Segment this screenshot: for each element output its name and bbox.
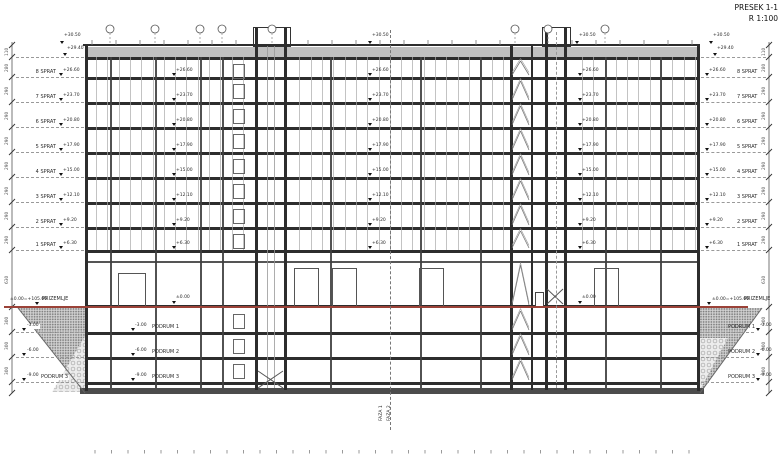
mullion-line — [446, 57, 447, 250]
floor-name-label: 7 SPRAT — [737, 95, 757, 100]
foundation-slab — [80, 388, 704, 394]
leader-line — [16, 332, 84, 333]
mullion-line — [345, 57, 346, 250]
elevation-marker-icon — [22, 353, 26, 356]
shaft-door-box — [535, 292, 544, 307]
mullion-line — [424, 57, 425, 250]
stair-flight-line — [521, 204, 530, 223]
floor-elevation-label: +26.60 — [582, 69, 599, 74]
leader-line — [701, 227, 766, 228]
elevator-door-box — [233, 209, 245, 224]
parapet-line — [83, 44, 700, 46]
dimension-value: 290 — [763, 161, 767, 169]
dimension-tick — [9, 199, 15, 205]
floor-elevation-label: +20.80 — [709, 119, 726, 124]
mullion-line — [401, 57, 402, 250]
title-block: PRESEK 1-1 R 1:100 — [640, 3, 778, 24]
stair-flight-line — [521, 59, 530, 73]
elevation-marker-icon — [131, 328, 135, 331]
shaft-centerline — [556, 32, 557, 388]
leader-line — [16, 102, 84, 103]
ground-name-label: PRIZEMLJE — [42, 297, 68, 302]
basement-name-label: PODRUM 1 — [152, 325, 179, 330]
floor-elevation-label: +6.30 — [176, 242, 190, 247]
mullion-line — [153, 57, 154, 250]
basement-elevation-label: -9.00 — [135, 374, 147, 379]
leader-line — [16, 357, 84, 358]
dimension-value: 300 — [763, 316, 767, 324]
core-wall — [255, 28, 258, 390]
elevation-marker-icon — [578, 148, 582, 151]
stair-flight-line — [521, 359, 530, 378]
elevation-marker-icon — [131, 378, 135, 381]
elevation-marker-icon — [578, 246, 582, 249]
elevation-marker-icon — [705, 223, 709, 226]
dimension-tick — [9, 149, 15, 155]
mullion-line — [503, 57, 504, 250]
elevation-marker-icon — [368, 198, 372, 201]
grid-column — [222, 57, 224, 388]
floor-elevation-label: +12.10 — [709, 194, 726, 199]
leader-line — [701, 202, 766, 203]
section-drawing-canvas: PRESEK 1-1 R 1:100 +30.50+29.40+30.50+29… — [0, 0, 782, 473]
floor-name-label: 5 SPRAT — [26, 145, 56, 150]
stair-flight-line — [521, 154, 530, 173]
dimension-value: 300 — [763, 341, 767, 349]
floor-elevation-label: +12.10 — [63, 194, 80, 199]
floor-elevation-label: +9.20 — [709, 219, 723, 224]
storefront-box — [419, 268, 444, 308]
drawing-scale: R 1:100 — [640, 14, 778, 25]
elevator-rail — [274, 46, 275, 388]
elevator-door-box — [233, 234, 245, 249]
dimension-tick — [9, 224, 15, 230]
elevation-marker-icon — [131, 353, 135, 356]
elevation-marker-icon — [172, 246, 176, 249]
dimension-tick — [766, 124, 772, 130]
stair-flight-line — [521, 334, 530, 353]
leader-line — [16, 77, 84, 78]
shaft-wall — [564, 28, 567, 390]
x-brace-line — [258, 371, 283, 388]
storefront-box — [118, 273, 146, 308]
elevation-marker-icon — [172, 173, 176, 176]
mullion-line — [164, 57, 165, 250]
grid-column — [200, 57, 202, 388]
basement-name-label: PODRUM 3 — [728, 375, 755, 380]
floor-elevation-label: +26.60 — [372, 69, 389, 74]
grid-column — [420, 57, 422, 388]
dimension-value: 630 — [6, 275, 10, 283]
phase-boundary-line — [390, 30, 391, 430]
floor-elevation-label: +15.00 — [63, 169, 80, 174]
storefront-box — [332, 268, 357, 308]
elevation-marker-icon — [172, 198, 176, 201]
elevation-marker-icon — [705, 148, 709, 151]
mullion-line — [367, 57, 368, 250]
floor-elevation-label: +15.00 — [582, 169, 599, 174]
mullion-line — [333, 57, 334, 250]
floor-elevation-label: +9.20 — [63, 219, 77, 224]
leader-line — [16, 127, 84, 128]
basement-elevation-label: -6.00 — [26, 349, 40, 354]
parapet-band — [85, 47, 698, 57]
stair-flight-line — [521, 206, 530, 225]
dimension-tick — [766, 199, 772, 205]
mullion-line — [356, 57, 357, 250]
floor-name-label: 4 SPRAT — [737, 170, 757, 175]
dimension-value: 290 — [763, 136, 767, 144]
elevation-marker-icon — [578, 98, 582, 101]
floor-elevation-label: +15.00 — [372, 169, 389, 174]
dimension-value: 300 — [6, 366, 10, 374]
dimension-tick — [9, 379, 15, 385]
mullion-line — [672, 57, 673, 250]
floor-elevation-label: +20.80 — [176, 119, 193, 124]
stair-flight-line — [512, 265, 521, 305]
dimension-value: 290 — [763, 86, 767, 94]
elevator-door-box — [233, 184, 245, 199]
elevator-door-box — [233, 134, 245, 149]
floor-elevation-label: +23.70 — [709, 94, 726, 99]
roof-elevation-label: +30.50 — [579, 34, 596, 39]
grid-column — [110, 57, 112, 388]
stair-flight-line — [512, 61, 521, 75]
stair-flight-line — [521, 336, 530, 355]
elevation-marker-icon — [578, 173, 582, 176]
elevator-door-box — [233, 109, 245, 124]
elevation-marker-icon — [172, 98, 176, 101]
stair-flight-line — [521, 106, 530, 125]
elevation-marker-icon — [578, 73, 582, 76]
elevation-marker-icon — [59, 198, 63, 201]
stair-flight-line — [512, 104, 521, 123]
leader-line — [701, 77, 766, 78]
dimension-tick — [9, 390, 15, 396]
mullion-line — [322, 57, 323, 250]
floor-elevation-label: +23.70 — [63, 94, 80, 99]
stair-flight-line — [521, 156, 530, 175]
elevation-marker-icon — [59, 123, 63, 126]
elevator-door-box — [233, 159, 245, 174]
leader-line — [16, 57, 84, 58]
elevation-marker-icon — [59, 98, 63, 101]
floor-name-label: 7 SPRAT — [26, 95, 56, 100]
dimension-value: 630 — [763, 275, 767, 283]
elevation-marker-icon — [59, 148, 63, 151]
elevation-marker-icon — [705, 98, 709, 101]
leader-line — [16, 177, 84, 178]
basement-elevation-label: -9.00 — [26, 374, 40, 379]
elevation-marker-icon — [368, 73, 372, 76]
stair-flight-line — [512, 131, 521, 150]
mullion-line — [130, 57, 131, 250]
elevation-marker-icon — [172, 73, 176, 76]
mullion-line — [198, 57, 199, 250]
basement-name-label: PODRUM 3 — [40, 375, 69, 380]
drawing-title: PRESEK 1-1 — [640, 3, 778, 14]
floor-elevation-label: +12.10 — [176, 194, 193, 199]
basement-name-label: PODRUM 1 — [728, 325, 755, 330]
dimension-tick — [766, 304, 772, 310]
grid-column — [605, 57, 607, 388]
ground-level-line — [4, 306, 748, 308]
mullion-line — [458, 57, 459, 250]
grid-axis-bubble — [196, 25, 204, 33]
leader-line — [16, 202, 84, 203]
elevator-door-box — [233, 339, 245, 354]
stair-flight-line — [512, 129, 521, 148]
stair-flight-line — [512, 79, 521, 98]
basement-name-label: PODRUM 2 — [152, 350, 179, 355]
dimension-tick — [766, 379, 772, 385]
ground-elevation-label: ±0.00 — [176, 296, 190, 301]
mullion-line — [469, 57, 470, 250]
dimension-value: 290 — [6, 211, 10, 219]
dimension-value: 300 — [6, 316, 10, 324]
leader-line — [701, 250, 766, 251]
floor-elevation-label: +20.80 — [372, 119, 389, 124]
elevation-marker-icon — [59, 223, 63, 226]
floor-elevation-label: +26.60 — [176, 69, 193, 74]
floor-elevation-label: +17.90 — [709, 144, 726, 149]
stair-flight-line — [512, 206, 521, 225]
elevation-marker-icon — [59, 73, 63, 76]
mullion-line — [299, 57, 300, 250]
basement-name-label: PODRUM 3 — [152, 375, 179, 380]
stair-flight-line — [512, 359, 521, 378]
floor-elevation-label: +17.90 — [176, 144, 193, 149]
exterior-wall-left — [85, 45, 88, 391]
basement-elevation-label: -3.00 — [135, 324, 147, 329]
elevation-marker-icon — [368, 173, 372, 176]
x-brace-line — [258, 371, 283, 388]
leader-line — [16, 382, 84, 383]
elevation-marker-icon — [756, 378, 760, 381]
mullion-line — [684, 57, 685, 250]
elevation-marker-icon — [35, 302, 39, 305]
elevation-marker-icon — [713, 53, 717, 56]
mullion-line — [650, 57, 651, 250]
grid-column — [480, 57, 482, 388]
dimension-tick — [766, 247, 772, 253]
elevation-marker-icon — [63, 53, 67, 56]
stair-flight-line — [512, 263, 521, 303]
stair-flight-line — [512, 154, 521, 173]
elevation-marker-icon — [705, 123, 709, 126]
elevator-door-box — [233, 314, 245, 329]
floor-elevation-label: +23.70 — [582, 94, 599, 99]
leader-line — [701, 102, 766, 103]
stair-flight-line — [512, 334, 521, 353]
floor-elevation-label: +23.70 — [176, 94, 193, 99]
stair-flight-line — [521, 181, 530, 200]
roof-elevation-label: +30.50 — [372, 34, 389, 39]
floor-elevation-label: +26.60 — [709, 69, 726, 74]
elevation-marker-icon — [368, 223, 372, 226]
phase-label: FAZA 2 — [388, 405, 393, 421]
mullion-line — [627, 57, 628, 250]
dimension-value: 290 — [6, 186, 10, 194]
dimension-tick — [9, 74, 15, 80]
stair-flight-line — [512, 81, 521, 100]
elevation-marker-icon — [709, 41, 713, 44]
leader-line — [701, 357, 754, 358]
elevation-marker-icon — [705, 246, 709, 249]
stair-flight-line — [512, 204, 521, 223]
floor-name-label: 3 SPRAT — [26, 195, 56, 200]
elevation-marker-icon — [705, 173, 709, 176]
mullion-line — [412, 57, 413, 250]
exterior-wall-right — [697, 45, 700, 391]
floor-name-label: 2 SPRAT — [737, 220, 757, 225]
floor-elevation-label: +6.30 — [63, 242, 77, 247]
floor-elevation-label: +12.10 — [582, 194, 599, 199]
dimension-tick — [9, 174, 15, 180]
stair-flight-line — [521, 311, 530, 330]
leader-line — [701, 57, 766, 58]
dimension-tick — [766, 354, 772, 360]
shaft-wall — [545, 28, 548, 390]
elevation-marker-icon — [59, 173, 63, 176]
floor-elevation-label: +26.60 — [63, 69, 80, 74]
grid-column — [330, 57, 332, 388]
mullion-line — [96, 57, 97, 250]
elevator-rail — [267, 46, 268, 388]
elevator-door-box — [233, 84, 245, 99]
elevation-marker-icon — [22, 328, 26, 331]
dimension-tick — [9, 99, 15, 105]
stair-flight-line — [512, 229, 521, 246]
stair-flight-line — [512, 179, 521, 198]
floor-elevation-label: +9.20 — [176, 219, 190, 224]
roof-elevation-label: +29.40 — [717, 47, 734, 52]
mullion-line — [435, 57, 436, 250]
grid-column — [660, 57, 662, 388]
floor-elevation-label: +6.30 — [582, 242, 596, 247]
elevation-marker-icon — [172, 223, 176, 226]
dimension-value: 300 — [6, 341, 10, 349]
stair-flight-line — [521, 309, 530, 328]
elevation-marker-icon — [705, 198, 709, 201]
stair-flight-line — [521, 131, 530, 150]
dimension-value: 290 — [763, 111, 767, 119]
dimension-tick — [766, 74, 772, 80]
roof-elevation-label: +30.50 — [713, 34, 730, 39]
roof-elevation-label: +30.50 — [64, 34, 81, 39]
floor-elevation-label: +9.20 — [582, 219, 596, 224]
core-wall — [284, 28, 287, 390]
elevation-marker-icon — [705, 73, 709, 76]
leader-line — [701, 152, 766, 153]
floor-name-label: 2 SPRAT — [26, 220, 56, 225]
stair-flight-line — [521, 265, 530, 305]
elevation-marker-icon — [59, 246, 63, 249]
floor-elevation-label: +9.20 — [372, 219, 386, 224]
elevation-marker-icon — [575, 41, 579, 44]
elevation-marker-icon — [756, 328, 760, 331]
floor-elevation-label: +17.90 — [582, 144, 599, 149]
stair-flight-line — [521, 361, 530, 380]
dimension-value: 280 — [763, 64, 767, 72]
dimension-tick — [766, 329, 772, 335]
phase-label: FAZA 1 — [380, 405, 385, 421]
stair-wall — [531, 45, 534, 390]
dimension-tick — [9, 247, 15, 253]
elevation-marker-icon — [368, 98, 372, 101]
floor-name-label: 3 SPRAT — [737, 195, 757, 200]
roof-elevation-label: +29.40 — [67, 47, 84, 52]
basement-name-label: PODRUM 2 — [728, 350, 755, 355]
dimension-value: 290 — [763, 235, 767, 243]
elevator-door-box — [233, 364, 245, 379]
elevation-marker-icon — [368, 246, 372, 249]
floor-elevation-label: +20.80 — [582, 119, 599, 124]
dimension-tick — [766, 174, 772, 180]
grid-column — [155, 57, 157, 388]
stair-flight-line — [512, 231, 521, 248]
mullion-line — [695, 57, 696, 250]
floor-name-label: 4 SPRAT — [26, 170, 56, 175]
stair-wall — [510, 45, 513, 390]
stair-flight-line — [521, 61, 530, 75]
storefront-box — [294, 268, 319, 308]
mullion-line — [492, 57, 493, 250]
floor-name-label: 5 SPRAT — [737, 145, 757, 150]
floor-name-label: 6 SPRAT — [737, 120, 757, 125]
mullion-line — [119, 57, 120, 250]
stair-flight-line — [521, 81, 530, 100]
floor-name-label: 1 SPRAT — [737, 243, 757, 248]
basement-elevation-label: -6.00 — [135, 349, 147, 354]
stair-flight-line — [512, 106, 521, 125]
linework-overlay — [0, 0, 782, 473]
stair-flight-line — [521, 79, 530, 98]
floor-elevation-label: +17.90 — [63, 144, 80, 149]
floor-elevation-label: +6.30 — [372, 242, 386, 247]
dimension-tick — [766, 99, 772, 105]
elevation-marker-icon — [368, 123, 372, 126]
ground-name-label: PRIZEMLJE — [744, 297, 770, 302]
grid-axis-bubble — [511, 25, 519, 33]
elevation-marker-icon — [578, 223, 582, 226]
floor-elevation-label: +15.00 — [709, 169, 726, 174]
floor-name-label: 8 SPRAT — [737, 70, 757, 75]
dimension-value: 280 — [6, 64, 10, 72]
dimension-tick — [9, 124, 15, 130]
floor-elevation-label: +12.10 — [372, 194, 389, 199]
leader-line — [701, 127, 766, 128]
stair-flight-line — [512, 309, 521, 328]
storefront-box — [594, 268, 619, 308]
elevation-marker-icon — [368, 148, 372, 151]
grid-axis-bubble — [106, 25, 114, 33]
elevation-marker-icon — [368, 41, 372, 44]
dimension-value: 300 — [763, 366, 767, 374]
stair-flight-line — [512, 311, 521, 330]
elevator-door-box — [233, 64, 245, 79]
elevation-marker-icon — [578, 301, 582, 304]
floor-elevation-label: +6.30 — [709, 242, 723, 247]
dimension-value: 290 — [6, 161, 10, 169]
dimension-value: 110 — [763, 48, 767, 56]
dimension-value: 290 — [6, 136, 10, 144]
stair-flight-line — [521, 229, 530, 246]
floor-elevation-label: +23.70 — [372, 94, 389, 99]
dimension-tick — [9, 354, 15, 360]
mullion-line — [311, 57, 312, 250]
elevation-marker-icon — [172, 148, 176, 151]
